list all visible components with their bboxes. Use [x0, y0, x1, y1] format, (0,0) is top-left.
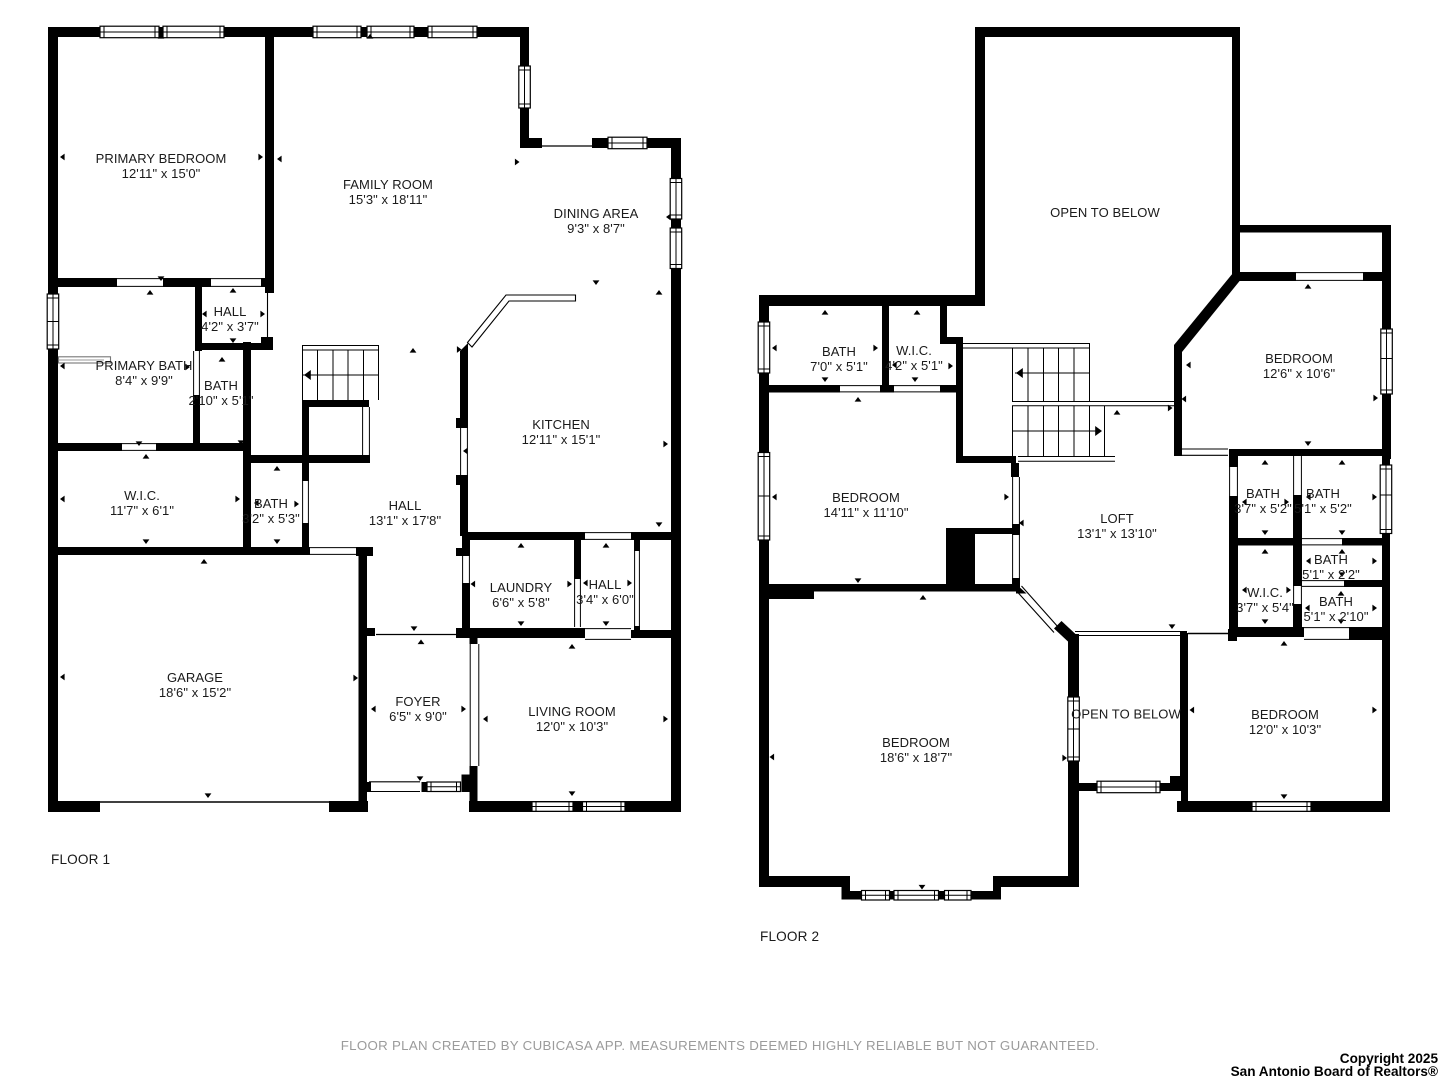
- svg-text:6'6" x 5'8": 6'6" x 5'8": [492, 595, 550, 610]
- svg-text:HALL: HALL: [589, 577, 622, 592]
- svg-text:BEDROOM: BEDROOM: [832, 490, 900, 505]
- svg-text:8'4" x 9'9": 8'4" x 9'9": [115, 373, 173, 388]
- svg-text:BEDROOM: BEDROOM: [882, 735, 950, 750]
- svg-text:3'7" x 5'4": 3'7" x 5'4": [1236, 600, 1294, 615]
- svg-text:11'7" x 6'1": 11'7" x 6'1": [110, 503, 174, 518]
- svg-text:12'6" x 10'6": 12'6" x 10'6": [1263, 366, 1336, 381]
- svg-text:FLOOR 2: FLOOR 2: [760, 929, 819, 944]
- svg-text:5'1" x 2'2": 5'1" x 2'2": [1302, 567, 1360, 582]
- svg-text:BATH: BATH: [822, 344, 856, 359]
- svg-text:PRIMARY BEDROOM: PRIMARY BEDROOM: [96, 151, 227, 166]
- svg-text:13'1" x 13'10": 13'1" x 13'10": [1077, 526, 1157, 541]
- svg-text:W.I.C.: W.I.C.: [124, 488, 160, 503]
- svg-text:BATH: BATH: [1306, 486, 1340, 501]
- svg-text:3'2" x 5'3": 3'2" x 5'3": [242, 511, 300, 526]
- svg-text:OPEN TO BELOW: OPEN TO BELOW: [1071, 707, 1181, 722]
- svg-text:FAMILY ROOM: FAMILY ROOM: [343, 177, 433, 192]
- svg-text:15'3" x 18'11": 15'3" x 18'11": [349, 192, 428, 207]
- svg-text:LIVING ROOM: LIVING ROOM: [528, 704, 616, 719]
- svg-text:BATH: BATH: [1246, 486, 1280, 501]
- svg-text:18'6" x 18'7": 18'6" x 18'7": [880, 750, 953, 765]
- svg-text:12'0" x 10'3": 12'0" x 10'3": [1249, 722, 1322, 737]
- svg-text:BEDROOM: BEDROOM: [1265, 351, 1333, 366]
- svg-text:BATH: BATH: [254, 496, 288, 511]
- svg-text:W.I.C.: W.I.C.: [1247, 585, 1283, 600]
- svg-text:4'2" x 5'1": 4'2" x 5'1": [885, 358, 943, 373]
- svg-text:5'1" x 2'10": 5'1" x 2'10": [1303, 609, 1368, 624]
- svg-text:14'11" x 11'10": 14'11" x 11'10": [823, 505, 908, 520]
- svg-text:4'2" x 3'7": 4'2" x 3'7": [201, 319, 259, 334]
- svg-text:2'10" x 5'1": 2'10" x 5'1": [188, 393, 253, 408]
- svg-text:FLOOR 1: FLOOR 1: [51, 852, 110, 867]
- svg-text:FOYER: FOYER: [395, 694, 440, 709]
- svg-text:HALL: HALL: [389, 498, 422, 513]
- svg-text:GARAGE: GARAGE: [167, 670, 223, 685]
- svg-text:LAUNDRY: LAUNDRY: [490, 580, 553, 595]
- svg-text:18'6" x 15'2": 18'6" x 15'2": [159, 685, 232, 700]
- svg-text:BATH: BATH: [1314, 552, 1348, 567]
- svg-text:12'11" x 15'1": 12'11" x 15'1": [522, 432, 601, 447]
- svg-text:13'1" x 17'8": 13'1" x 17'8": [369, 513, 442, 528]
- svg-text:12'11" x 15'0": 12'11" x 15'0": [122, 166, 201, 181]
- svg-text:BATH: BATH: [204, 378, 238, 393]
- svg-text:San Antonio Board of Realtors®: San Antonio Board of Realtors®: [1231, 1064, 1438, 1079]
- svg-text:KITCHEN: KITCHEN: [532, 417, 590, 432]
- svg-text:3'7" x 5'2": 3'7" x 5'2": [1234, 501, 1292, 516]
- svg-text:BEDROOM: BEDROOM: [1251, 707, 1319, 722]
- svg-text:PRIMARY BATH: PRIMARY BATH: [95, 358, 192, 373]
- svg-text:W.I.C.: W.I.C.: [896, 343, 932, 358]
- svg-text:BATH: BATH: [1319, 594, 1353, 609]
- svg-text:LOFT: LOFT: [1100, 511, 1134, 526]
- svg-text:6'5" x 9'0": 6'5" x 9'0": [389, 709, 447, 724]
- svg-text:HALL: HALL: [214, 304, 247, 319]
- svg-text:7'0" x 5'1": 7'0" x 5'1": [810, 359, 868, 374]
- svg-text:3'4" x 6'0": 3'4" x 6'0": [576, 592, 634, 607]
- svg-text:5'1" x 5'2": 5'1" x 5'2": [1294, 501, 1352, 516]
- svg-text:9'3" x 8'7": 9'3" x 8'7": [567, 221, 625, 236]
- svg-text:OPEN TO BELOW: OPEN TO BELOW: [1050, 205, 1160, 220]
- svg-text:FLOOR PLAN CREATED BY CUBICASA: FLOOR PLAN CREATED BY CUBICASA APP. MEAS…: [341, 1038, 1100, 1053]
- svg-text:12'0" x 10'3": 12'0" x 10'3": [536, 719, 609, 734]
- svg-text:DINING AREA: DINING AREA: [554, 206, 639, 221]
